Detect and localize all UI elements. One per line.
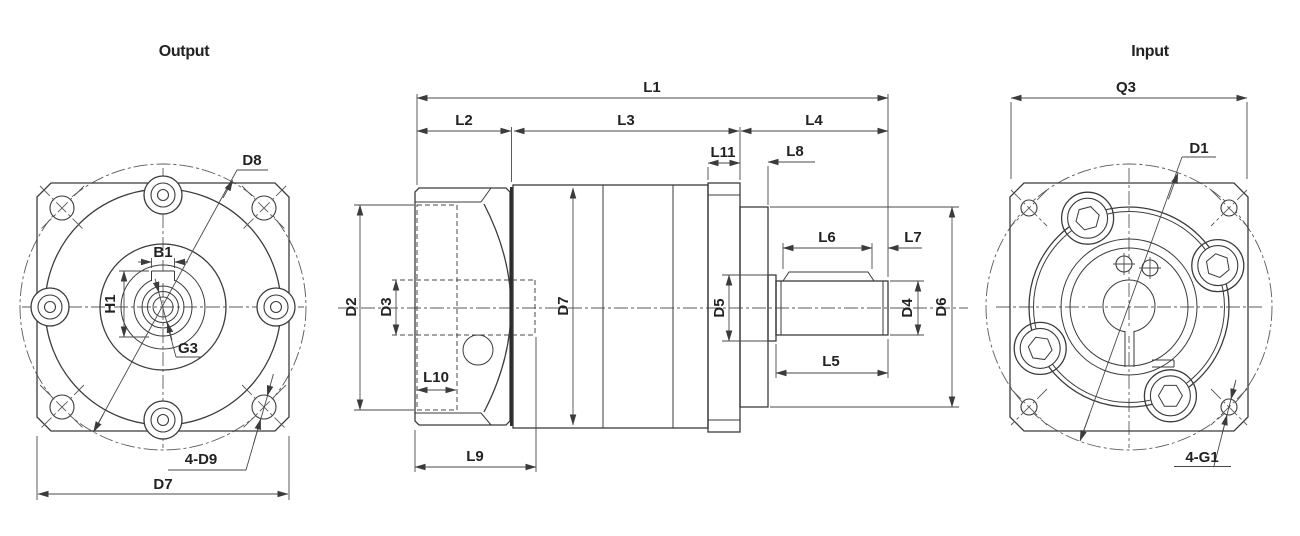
- dim-label-d6: D6: [933, 297, 950, 316]
- dim-label-l6: L6: [818, 229, 836, 246]
- input-view-title: Input: [1131, 43, 1170, 60]
- dim-label-l10: L10: [423, 369, 449, 386]
- technical-drawing-page: Output Input: [0, 0, 1300, 536]
- dim-label-4g1: 4-G1: [1185, 449, 1218, 466]
- dim-label-d3: D3: [378, 297, 395, 316]
- gearbox-dimension-drawing: Output Input: [0, 0, 1300, 536]
- dim-label-l8: L8: [786, 143, 804, 160]
- dim-label-d4: D4: [899, 298, 916, 318]
- dim-label-l11: L11: [710, 144, 735, 161]
- dim-label-l5: L5: [822, 353, 840, 370]
- dim-label-l3: L3: [617, 112, 635, 129]
- dim-label-q3: Q3: [1116, 79, 1136, 96]
- dim-label-l1: L1: [643, 79, 661, 96]
- dim-label-d5: D5: [711, 298, 728, 317]
- dim-label-l2: L2: [455, 112, 473, 129]
- dim-label-b1: B1: [153, 244, 172, 261]
- dim-label-l4: L4: [805, 112, 823, 129]
- output-view-title: Output: [159, 43, 211, 60]
- dim-label-g3: G3: [178, 340, 198, 357]
- dim-label-l9: L9: [466, 448, 484, 465]
- dim-label-l7: L7: [904, 229, 922, 246]
- dim-label-d7-side: D7: [555, 296, 572, 315]
- dim-label-d8: D8: [242, 152, 261, 169]
- dim-label-d1: D1: [1189, 140, 1208, 157]
- dim-label-h1: H1: [102, 294, 119, 313]
- dim-label-d7-left: D7: [153, 476, 172, 493]
- dim-label-d2: D2: [343, 297, 360, 316]
- dim-label-4d9: 4-D9: [185, 451, 218, 468]
